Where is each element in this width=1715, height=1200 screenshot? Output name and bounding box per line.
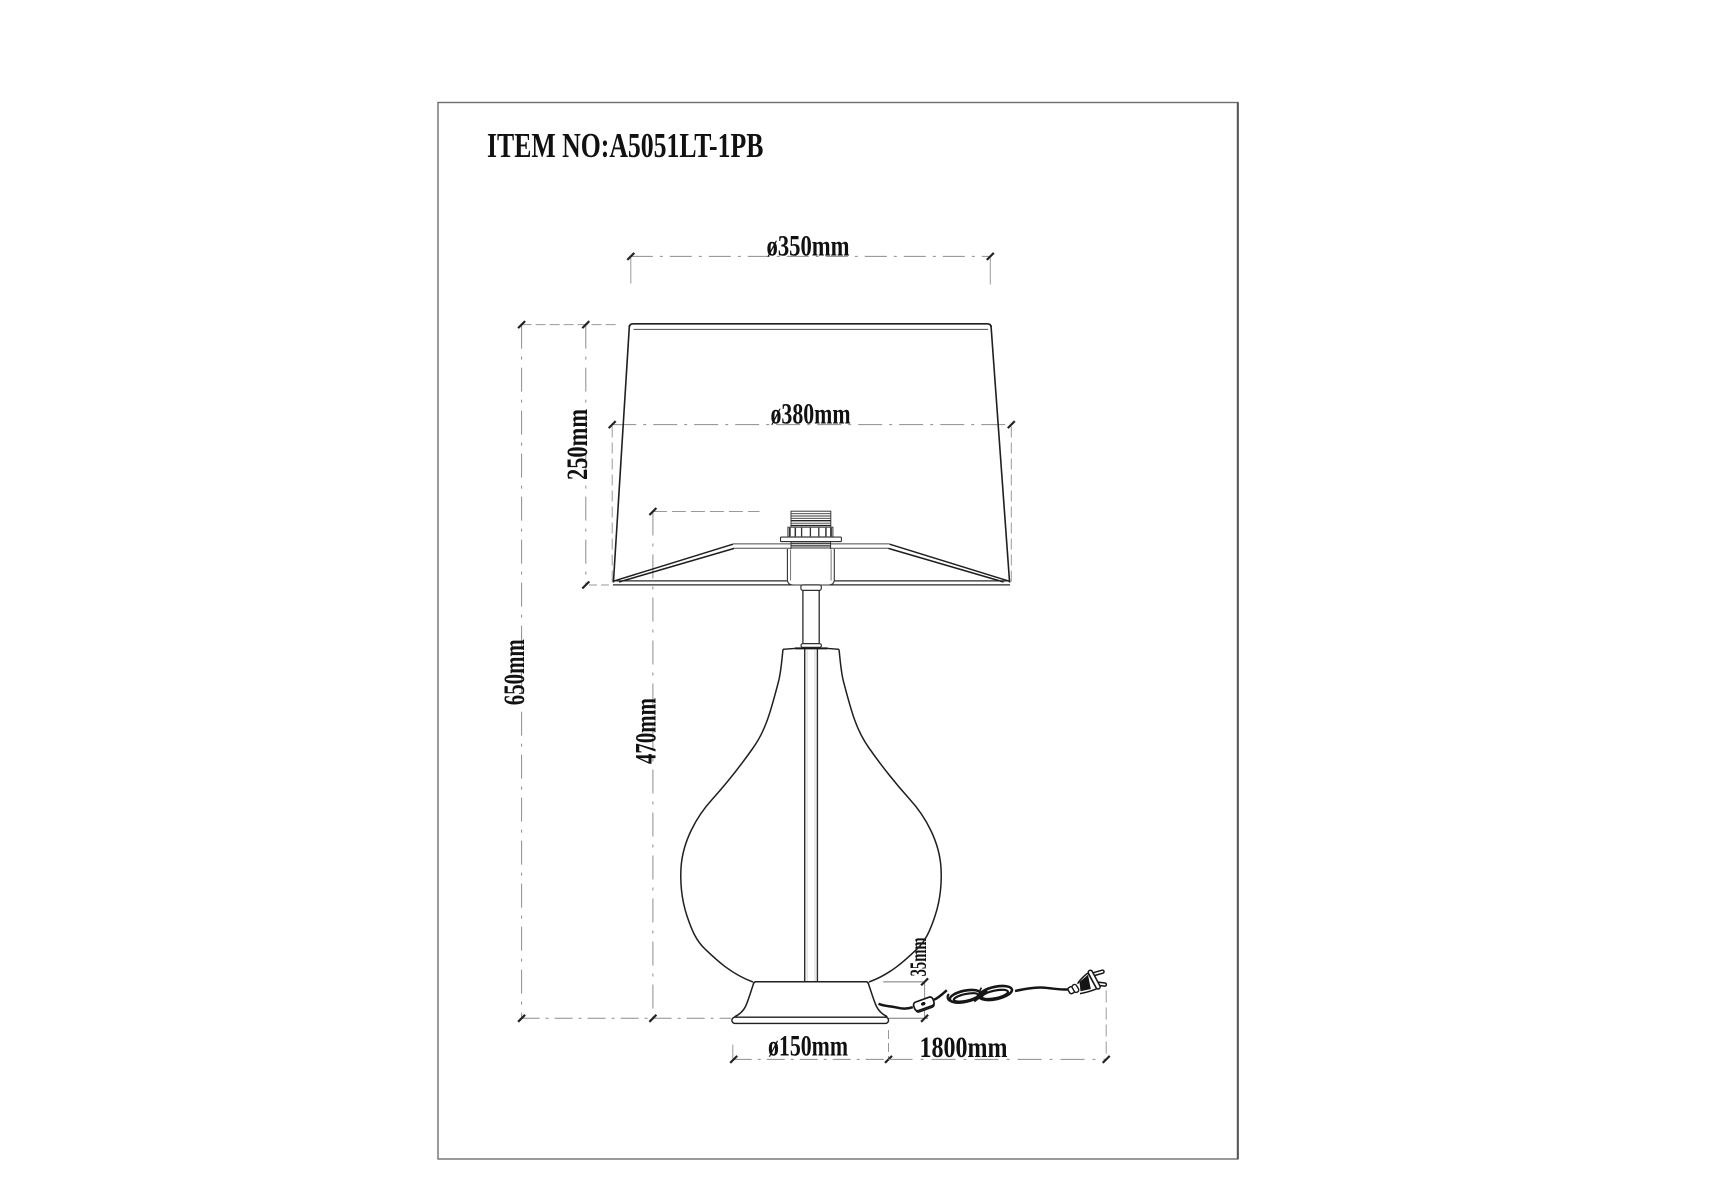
- svg-text:ITEM NO:A5051LT-1PB: ITEM NO:A5051LT-1PB: [487, 127, 763, 165]
- svg-text:650mm: 650mm: [499, 639, 531, 705]
- svg-text:1800mm: 1800mm: [920, 1031, 1008, 1064]
- svg-text:ø150mm: ø150mm: [768, 1031, 848, 1063]
- svg-text:35mm: 35mm: [906, 937, 931, 976]
- svg-text:ø350mm: ø350mm: [767, 230, 850, 262]
- svg-text:470mm: 470mm: [631, 698, 663, 764]
- svg-text:250mm: 250mm: [562, 409, 594, 480]
- svg-text:ø380mm: ø380mm: [771, 399, 851, 431]
